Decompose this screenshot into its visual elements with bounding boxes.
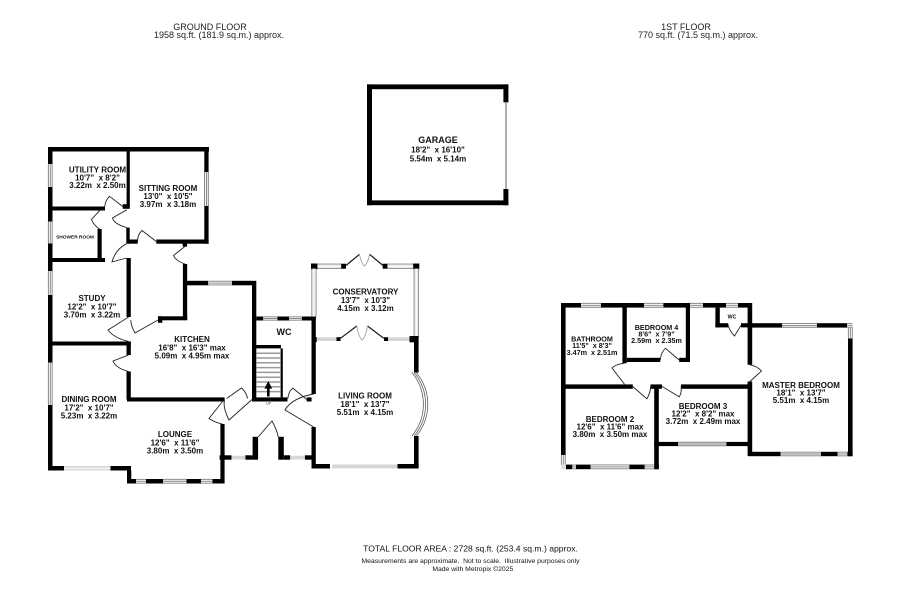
svg-text:3.47m x 2.51m: 3.47m x 2.51m [567, 348, 618, 357]
svg-text:3.22m x 2.50m: 3.22m x 2.50m [69, 181, 125, 190]
svg-text:5.23m x 3.22m: 5.23m x 3.22m [61, 412, 117, 421]
svg-text:1958 sq.ft. (181.9 sq.m.) appr: 1958 sq.ft. (181.9 sq.m.) approx. [154, 30, 284, 40]
svg-text:3.72m x 2.49m max: 3.72m x 2.49m max [666, 417, 741, 426]
svg-text:WC: WC [728, 315, 737, 321]
svg-text:TOTAL FLOOR AREA : 2728 sq.ft.: TOTAL FLOOR AREA : 2728 sq.ft. (253.4 sq… [363, 544, 578, 554]
svg-text:3.70m x 3.22m: 3.70m x 3.22m [64, 311, 120, 320]
svg-text:UP: UP [266, 402, 272, 406]
svg-text:GARAGE: GARAGE [418, 135, 458, 145]
svg-text:Made with Metropix ©2025: Made with Metropix ©2025 [432, 565, 513, 573]
svg-text:5.54m x 5.14m: 5.54m x 5.14m [410, 155, 466, 164]
svg-text:4.15m x 3.12m: 4.15m x 3.12m [337, 304, 393, 313]
svg-text:Measurements are approximate.: Measurements are approximate. Not to sca… [362, 558, 581, 565]
svg-text:18'2" x 16'10": 18'2" x 16'10" [411, 146, 465, 155]
svg-text:770 sq.ft. (71.5 sq.m.) approx: 770 sq.ft. (71.5 sq.m.) approx. [638, 30, 758, 40]
svg-text:5.51m x 4.15m: 5.51m x 4.15m [773, 396, 829, 405]
svg-text:3.80m x 3.50m: 3.80m x 3.50m [147, 447, 203, 456]
svg-text:2.59m x 2.35m: 2.59m x 2.35m [631, 336, 682, 345]
svg-text:3.97m x 3.18m: 3.97m x 3.18m [140, 200, 196, 209]
svg-text:5.09m x 4.95m max: 5.09m x 4.95m max [155, 352, 230, 361]
svg-text:3.80m x 3.50m max: 3.80m x 3.50m max [573, 430, 648, 439]
svg-text:SHOWER ROOM: SHOWER ROOM [56, 235, 94, 241]
svg-text:WC: WC [277, 327, 292, 337]
svg-text:5.51m x 4.15m: 5.51m x 4.15m [337, 408, 393, 417]
